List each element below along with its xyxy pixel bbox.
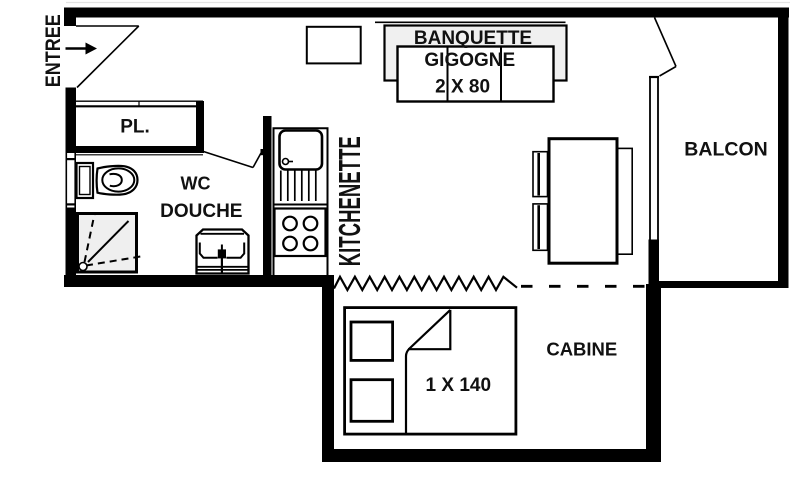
svg-text:PL.: PL. (120, 117, 150, 138)
svg-text:GIGOGNE: GIGOGNE (424, 50, 515, 71)
svg-text:BALCON: BALCON (684, 138, 767, 160)
svg-text:ENTREE: ENTREE (42, 14, 66, 87)
svg-text:WC: WC (181, 174, 211, 194)
svg-text:DOUCHE: DOUCHE (160, 201, 242, 222)
svg-text:2 X 80: 2 X 80 (435, 76, 490, 97)
svg-text:1 X 140: 1 X 140 (426, 375, 492, 396)
svg-text:KITCHENETTE: KITCHENETTE (333, 136, 367, 266)
svg-text:CABINE: CABINE (546, 339, 617, 360)
svg-text:BANQUETTE: BANQUETTE (414, 28, 532, 49)
